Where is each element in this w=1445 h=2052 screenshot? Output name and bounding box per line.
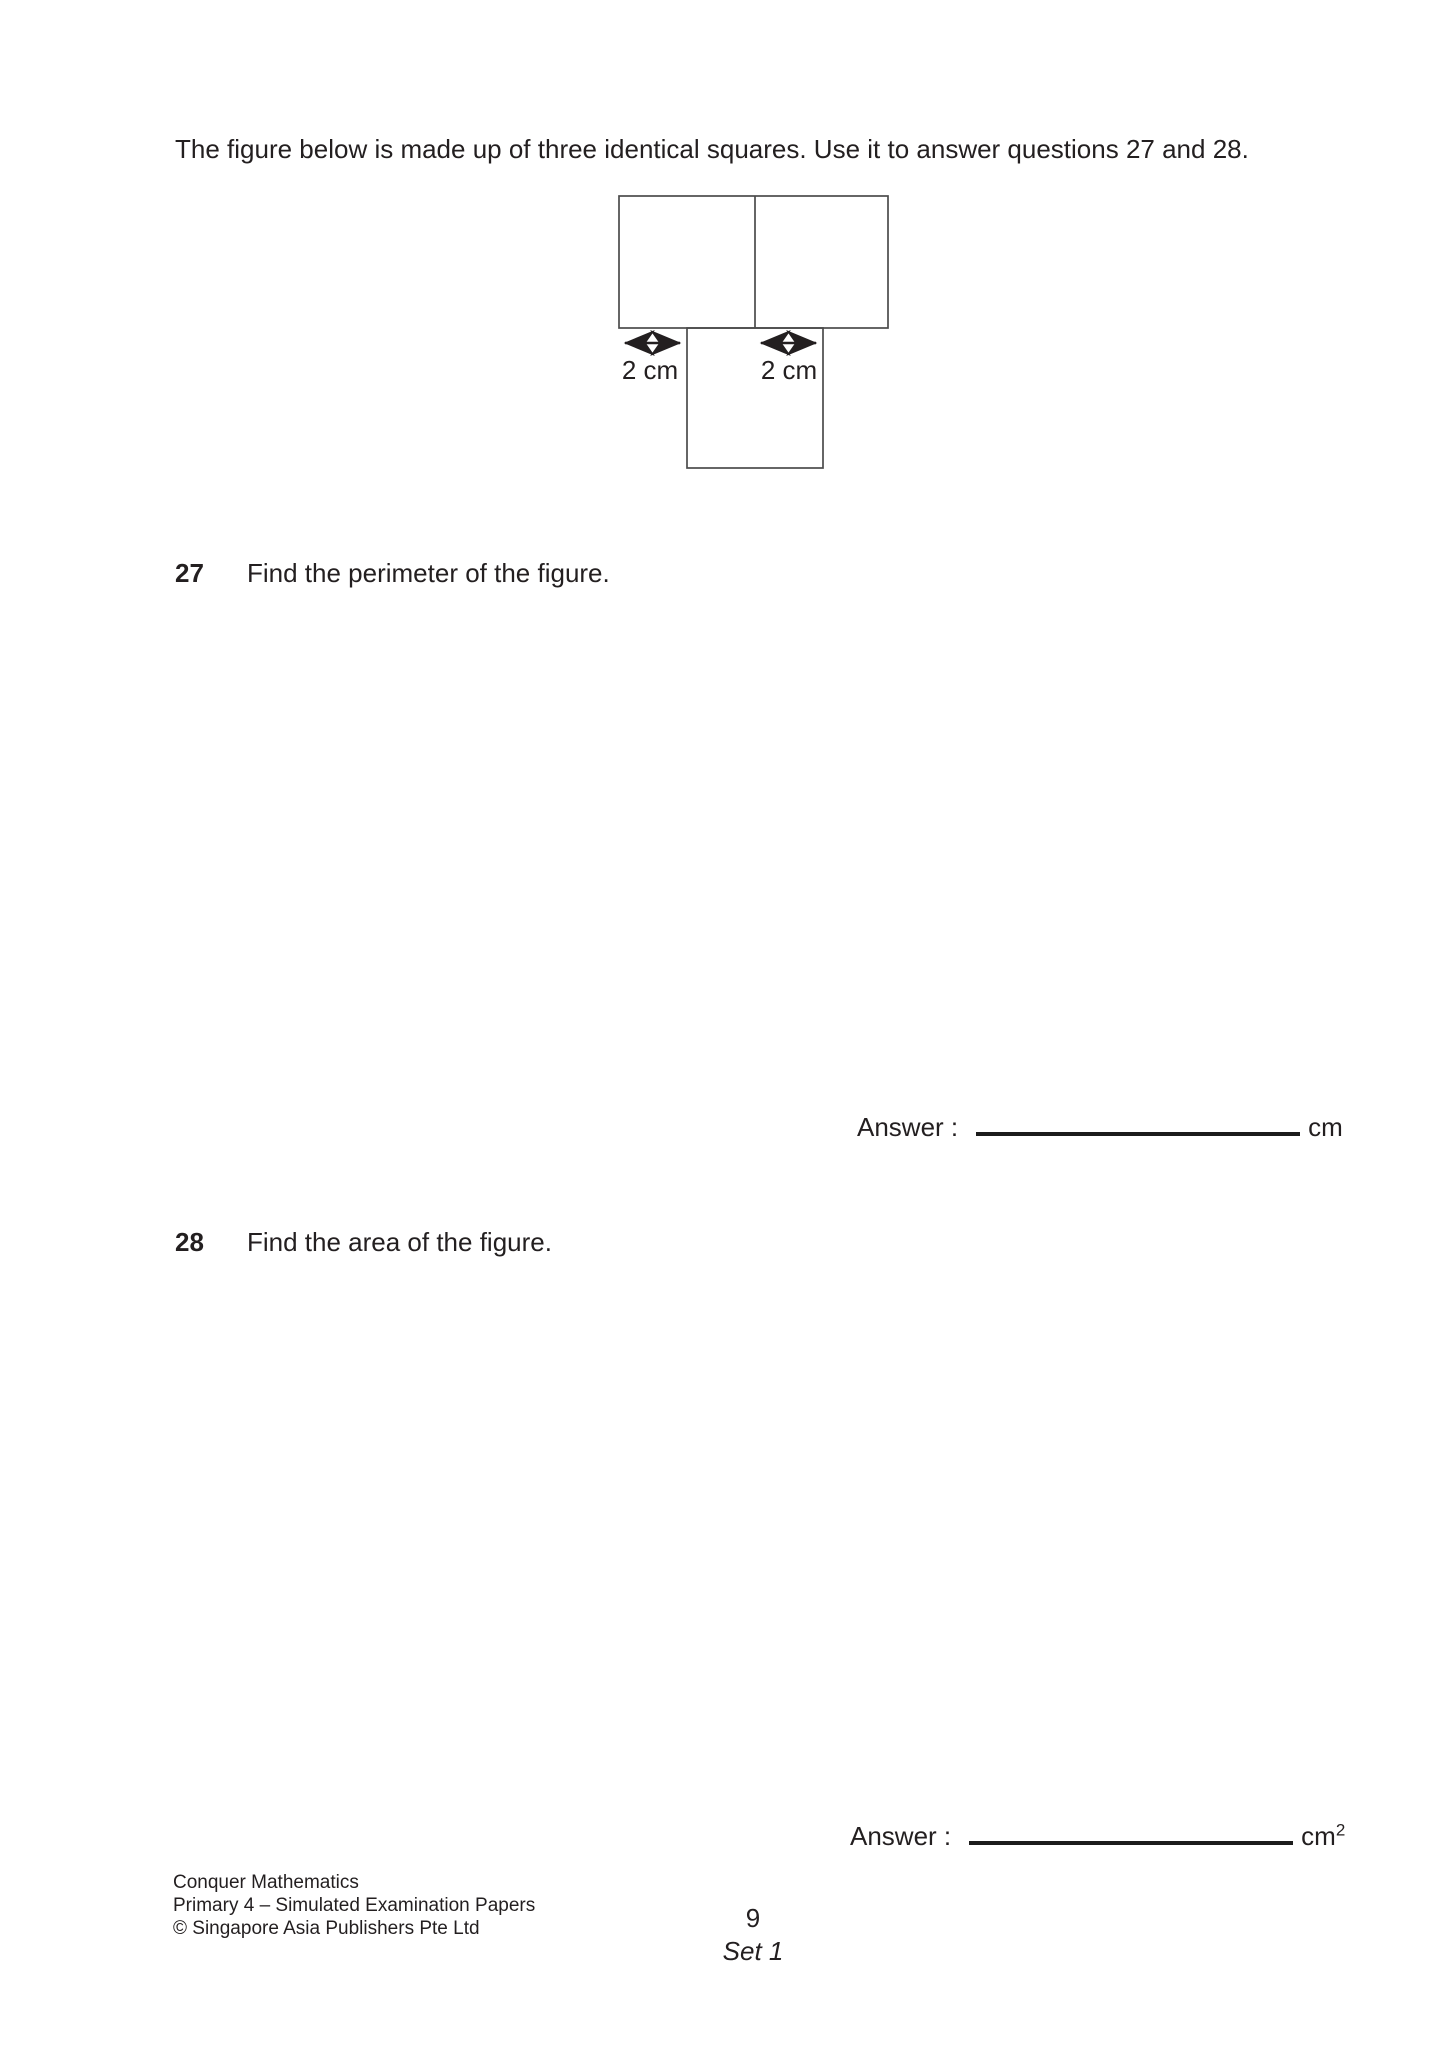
- left-dimension-label: 2 cm: [622, 355, 678, 385]
- footer-edition-title: Primary 4 – Simulated Examination Papers: [173, 1894, 535, 1917]
- footer-copyright: © Singapore Asia Publishers Pte Ltd: [173, 1917, 535, 1940]
- page-number: 9: [693, 1903, 813, 1933]
- footer-series-title: Conquer Mathematics: [173, 1871, 535, 1894]
- question-28-text: Find the area of the figure.: [247, 1227, 552, 1257]
- footer-imprint: Conquer Mathematics Primary 4 – Simulate…: [173, 1871, 535, 1940]
- answer-28-unit-exponent: 2: [1336, 1820, 1345, 1839]
- answer-27-label: Answer :: [857, 1112, 958, 1142]
- question-28-row: 28 Find the area of the figure.: [175, 1227, 552, 1257]
- answer-row-27: Answer :cm: [857, 1112, 1343, 1142]
- answer-28-unit: cm2: [1301, 1821, 1345, 1851]
- answer-28-unit-base: cm: [1301, 1821, 1336, 1851]
- page-number-block: 9 Set 1: [693, 1903, 813, 1966]
- answer-row-28: Answer :cm2: [850, 1821, 1345, 1851]
- question-27-row: 27 Find the perimeter of the figure.: [175, 558, 610, 588]
- three-squares-figure: 2 cm 2 cm: [600, 180, 920, 492]
- answer-27-blank-line: [976, 1127, 1300, 1136]
- answer-27-unit: cm: [1308, 1112, 1343, 1142]
- exam-paper-page: The figure below is made up of three ide…: [0, 0, 1445, 2052]
- intro-text: The figure below is made up of three ide…: [175, 134, 1249, 164]
- set-label: Set 1: [693, 1936, 813, 1966]
- answer-28-blank-line: [969, 1836, 1293, 1845]
- top-squares-outline: [619, 196, 888, 328]
- right-dimension-label: 2 cm: [761, 355, 817, 385]
- question-27-number: 27: [175, 558, 247, 588]
- bottom-square-outline: [687, 328, 823, 468]
- answer-28-label: Answer :: [850, 1821, 951, 1851]
- question-27-text: Find the perimeter of the figure.: [247, 558, 610, 588]
- question-28-number: 28: [175, 1227, 247, 1257]
